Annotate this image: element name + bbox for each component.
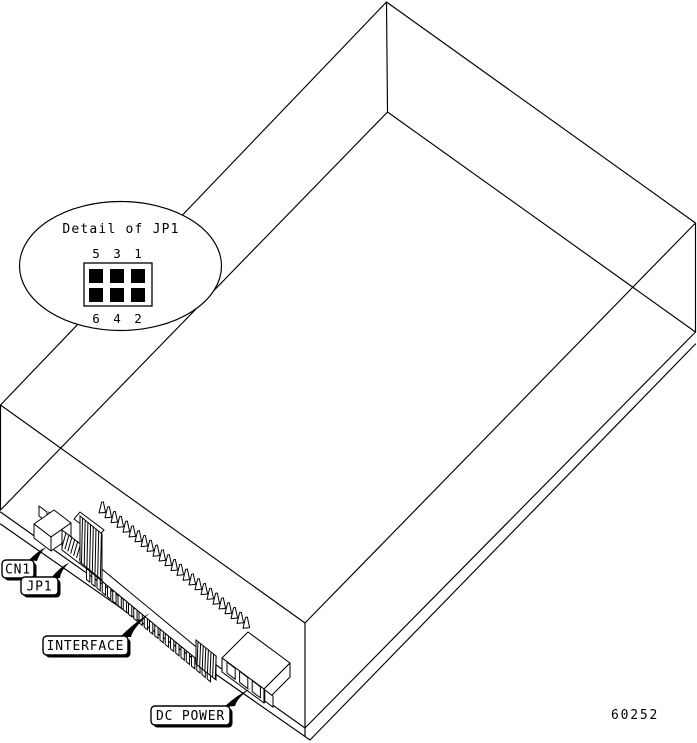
figure-number: 60252	[611, 708, 659, 723]
interface-pin-row-top	[99, 502, 250, 628]
pin-square-2	[131, 288, 145, 302]
pin-square-6	[89, 288, 103, 302]
jp1-label: JP1	[21, 577, 61, 598]
dc-power-label-text: DC POWER	[156, 709, 225, 724]
detail-callout: Detail of JP1 5 3 1 6 4 2	[20, 202, 222, 331]
pin-square-4	[110, 288, 124, 302]
interface-pin-row-bottom	[87, 569, 211, 682]
pin-number-6: 6	[92, 311, 100, 326]
interface-label: INTERFACE	[43, 636, 131, 658]
pin-number-2: 2	[134, 311, 142, 326]
pin-square-1	[131, 269, 145, 283]
detail-title: Detail of JP1	[62, 222, 179, 237]
dc-power-connector	[222, 632, 290, 707]
callout-labels: CN1 JP1 INTERFACE DC POWER	[2, 547, 251, 728]
pin-number-5: 5	[92, 246, 100, 261]
pin-number-1: 1	[134, 246, 142, 261]
jp1-label-text: JP1	[27, 580, 53, 595]
pin-number-4: 4	[113, 311, 121, 326]
technical-drawing-page: Detail of JP1 5 3 1 6 4 2	[0, 0, 697, 743]
chassis-outline	[1, 2, 696, 740]
cn1-label-text: CN1	[5, 563, 31, 578]
pin-number-3: 3	[113, 246, 121, 261]
pin-square-5	[89, 269, 103, 283]
chassis-base-edges	[1, 332, 696, 740]
interface-label-text: INTERFACE	[47, 639, 125, 654]
drive-isometric-diagram: Detail of JP1 5 3 1 6 4 2	[0, 0, 697, 743]
dc-power-label: DC POWER	[151, 706, 233, 728]
pin-square-3	[110, 269, 124, 283]
dc-power-pointer-arrow	[224, 688, 251, 707]
